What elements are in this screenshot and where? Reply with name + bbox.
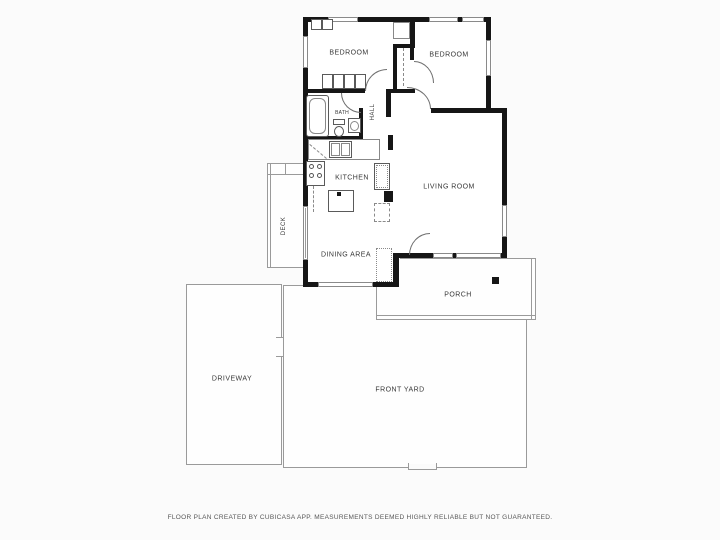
driveway-outline <box>186 284 282 465</box>
side-gate-tick-top <box>276 337 284 338</box>
toilet-bowl <box>334 126 344 137</box>
stove-burner <box>309 173 314 178</box>
nightstand <box>393 22 410 39</box>
window-living-bottom-1 <box>433 253 453 258</box>
side-gate-tick-bottom <box>276 356 284 357</box>
porch-inner-line-bottom <box>376 315 536 316</box>
porch-inner-line-right <box>531 258 532 320</box>
refrigerator-inner <box>376 165 388 188</box>
porch-post <box>492 277 499 284</box>
cabinet-row <box>322 74 333 89</box>
wall-hall-right <box>386 93 391 117</box>
wall-pier <box>384 191 393 202</box>
front-gate-tick-left <box>408 463 409 470</box>
window-dining-bottom <box>318 282 373 287</box>
deck-step-line <box>267 174 304 175</box>
cabinet-row <box>355 74 366 89</box>
window-bedroom2-right <box>486 40 491 76</box>
front-gate-tick-right <box>436 463 437 470</box>
window-bedroom1-left <box>303 36 308 68</box>
deck-inner-line <box>270 163 271 268</box>
wall-closet-right <box>410 44 414 60</box>
cabinet-row <box>333 74 344 89</box>
porch-outline <box>376 258 536 320</box>
stove-burner <box>317 164 322 169</box>
room-label-bath: BATH <box>335 110 349 116</box>
window-living-right <box>502 205 507 237</box>
dishwasher <box>374 203 390 222</box>
window-bedroom2-top-1 <box>429 17 458 22</box>
room-label-hall: HALL <box>370 104 376 121</box>
closet-rod <box>403 48 405 86</box>
floor-plan-canvas: BEDROOM BEDROOM BATH HALL KITCHEN LIVING… <box>0 0 720 540</box>
bathtub-basin <box>309 98 326 134</box>
room-label-bedroom-2: BEDROOM <box>429 52 468 59</box>
deck-step-tick <box>285 164 286 174</box>
upper-cabinet-dash <box>313 186 315 212</box>
room-label-driveway: DRIVEWAY <box>212 376 252 383</box>
wall-closet-left <box>393 44 397 93</box>
kitchen-sink-basin <box>331 143 340 156</box>
room-label-front-yard: FRONT YARD <box>375 387 424 394</box>
room-label-dining-area: DINING AREA <box>321 252 371 259</box>
window-living-bottom-2 <box>456 253 501 258</box>
kitchen-island <box>328 190 354 212</box>
dresser <box>322 19 333 30</box>
kitchen-sink-basin <box>341 143 350 156</box>
side-gate-gap <box>279 338 283 356</box>
wall-kitchen-stub <box>388 135 393 150</box>
deck-outline <box>267 163 304 268</box>
cabinet-row <box>344 74 355 89</box>
room-label-kitchen: KITCHEN <box>335 175 369 182</box>
bath-sink-basin <box>350 121 359 131</box>
stove-burner <box>317 173 322 178</box>
wall-bedroom2-bottom <box>431 108 507 113</box>
toilet-tank <box>333 119 345 125</box>
window-bedroom2-top-2 <box>462 17 484 22</box>
dresser <box>311 19 322 30</box>
disclaimer-text: FLOOR PLAN CREATED BY CUBICASA APP. MEAS… <box>0 514 720 521</box>
island-fixture-dot <box>337 192 341 196</box>
room-label-deck: DECK <box>281 217 287 235</box>
room-label-living-room: LIVING ROOM <box>423 184 475 191</box>
stove-burner <box>309 164 314 169</box>
dining-hutch <box>376 248 392 282</box>
deck-sliding-door-rail <box>305 208 306 258</box>
room-label-bedroom-1: BEDROOM <box>329 50 368 57</box>
front-gate-line <box>408 469 437 470</box>
room-label-porch: PORCH <box>444 292 472 299</box>
